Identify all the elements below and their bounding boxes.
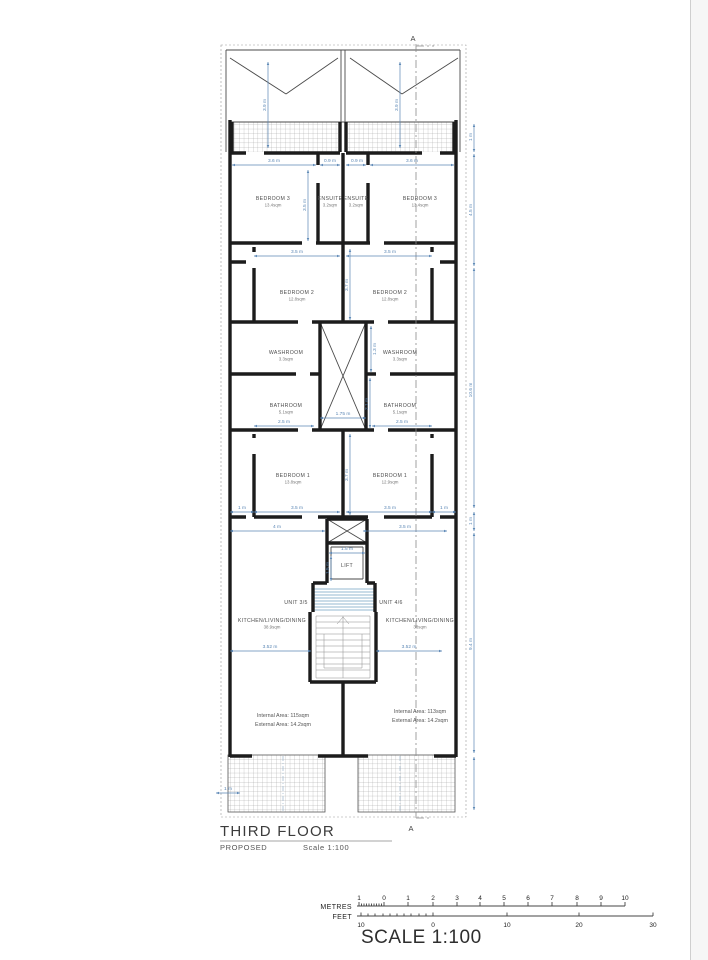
dim-label-28: 4.5 m [468, 204, 474, 216]
room-area-bedroom2-right: 12.8sqm [382, 297, 399, 302]
room-label-unit-4-6: UNIT 4/6 [379, 600, 402, 606]
metres-tick-2: 1 [406, 895, 410, 902]
metres-tick-9: 8 [575, 895, 579, 902]
area-note-1-line-1: External Area: 14.2sqm [392, 718, 449, 724]
drawing-sheet: BEDROOM 313.4sqmENSUITE3.2sqmENSUITE3.2s… [0, 0, 708, 960]
room-label-lift: LIFT [341, 563, 354, 569]
room-area-ensuite-right: 3.2sqm [349, 203, 364, 208]
floor-plan-canvas: BEDROOM 313.4sqmENSUITE3.2sqmENSUITE3.2s… [0, 0, 708, 960]
metres-tick-0: 1 [357, 895, 361, 902]
area-note-0-line-1: External Area: 14.2sqm [255, 722, 312, 728]
balcony-hatch [228, 755, 455, 812]
room-area-bathroom-right: 5.1sqm [393, 410, 408, 415]
area-note-1-line-0: Internal Area: 113sqm [394, 709, 447, 715]
metres-tick-4: 3 [455, 895, 459, 902]
metres-tick-11: 10 [621, 895, 629, 902]
dim-label-16: 3.52 m [263, 644, 278, 650]
room-area-kitchen-right: 38sqm [413, 625, 427, 630]
dim-label-2: 0.9 m [351, 158, 363, 164]
feet-tick-2: 10 [503, 922, 511, 929]
metres-tick-3: 2 [431, 895, 435, 902]
area-note-0-line-0: Internal Area: 115sqm [257, 713, 310, 719]
drawing-subtitle: PROPOSED [220, 843, 267, 852]
area-notes: Internal Area: 115sqmExternal Area: 14.2… [255, 709, 449, 728]
room-area-bedroom1-right: 12.9sqm [382, 480, 399, 485]
room-area-bathroom-left: 5.1sqm [279, 410, 294, 415]
room-label-ensuite-right: ENSUITE [344, 196, 369, 202]
dim-label-14: 3.5 m [399, 524, 411, 530]
room-label-bedroom3-left: BEDROOM 3 [256, 196, 290, 202]
dim-label-10: 3.5 m [291, 505, 303, 511]
dim-label-30: 1 m [468, 517, 474, 525]
dim-label-8: 1.75 m [336, 411, 351, 417]
section-marker-bottom: A [408, 824, 413, 833]
room-area-kitchen-left: 38.9sqm [264, 625, 281, 630]
dim-label-4: 3.5 m [291, 249, 303, 255]
room-label-washroom-right: WASHROOM [383, 350, 417, 356]
dim-label-20: 3.9 m [394, 99, 400, 111]
room-label-bathroom-right: BATHROOM [384, 403, 416, 409]
dim-label-22: 3.7 m [344, 279, 350, 291]
room-area-washroom-right: 3.3sqm [393, 357, 408, 362]
room-area-bedroom1-left: 13.8sqm [285, 480, 302, 485]
room-label-unit-3-5: UNIT 3/5 [284, 600, 307, 606]
title-block: THIRD FLOOR PROPOSED Scale 1:100 [220, 823, 392, 852]
dim-label-17: 3.52 m [402, 644, 417, 650]
metres-ruler [357, 902, 625, 906]
room-label-washroom-left: WASHROOM [269, 350, 303, 356]
dim-label-27: 1 m [468, 133, 474, 141]
dim-label-11: 3.5 m [384, 505, 396, 511]
metres-label: METRES [320, 904, 352, 911]
metres-tick-8: 7 [550, 895, 554, 902]
dim-label-15: 1.5 m [341, 546, 353, 552]
dim-label-1: 0.9 m [324, 158, 336, 164]
room-label-bedroom1-left: BEDROOM 1 [276, 473, 310, 479]
dim-label-29: 10.6 m [468, 383, 474, 398]
dim-label-13: 4 m [273, 524, 281, 530]
room-area-bedroom3-left: 13.4sqm [265, 203, 282, 208]
feet-tick-4: 30 [649, 922, 657, 929]
room-label-ensuite-left: ENSUITE [318, 196, 343, 202]
drawing-title: THIRD FLOOR [220, 823, 335, 840]
feet-label: FEET [333, 914, 353, 921]
scale-bar: METRES FEET 1012345678910 100102030 SCAL… [320, 895, 657, 948]
dim-label-23: 1.3 m [372, 343, 378, 355]
dim-label-19: 3.9 m [262, 99, 268, 111]
room-area-washroom-left: 3.3sqm [279, 357, 294, 362]
section-marker-top: A [410, 34, 415, 43]
scale-bar-title: SCALE 1:100 [361, 927, 482, 948]
terrace-hatch [232, 122, 454, 152]
room-label-bedroom2-left: BEDROOM 2 [280, 290, 314, 296]
room-label-bedroom3-right: BEDROOM 3 [403, 196, 437, 202]
feet-ruler [357, 913, 653, 917]
dim-label-26: 1.5 m [325, 562, 331, 574]
landing-stripes [312, 589, 375, 610]
room-label-kitchen-right: KITCHEN/LIVING/DINING [386, 618, 454, 624]
dim-label-0: 3.6 m [268, 158, 280, 164]
dim-label-7: 2.5 m [396, 419, 408, 425]
room-area-bedroom2-left: 12.8sqm [289, 297, 306, 302]
room-label-bathroom-left: BATHROOM [270, 403, 302, 409]
metres-tick-6: 5 [502, 895, 506, 902]
feet-tick-3: 20 [575, 922, 583, 929]
dim-label-18: 1 m [224, 786, 232, 792]
metres-tick-labels: 1012345678910 [357, 895, 629, 902]
drawing-scale-note: Scale 1:100 [303, 843, 349, 852]
dim-label-5: 3.5 m [384, 249, 396, 255]
dim-label-21: 3.5 m [302, 199, 308, 211]
room-area-ensuite-left: 3.2sqm [323, 203, 338, 208]
staircase [316, 616, 370, 678]
room-label-kitchen-left: KITCHEN/LIVING/DINING [238, 618, 306, 624]
page-margin-strip [690, 0, 708, 960]
room-area-bedroom3-right: 13.4sqm [412, 203, 429, 208]
metres-tick-5: 4 [478, 895, 482, 902]
dim-label-3: 3.6 m [406, 158, 418, 164]
room-label-bedroom1-right: BEDROOM 1 [373, 473, 407, 479]
metres-tick-7: 6 [526, 895, 530, 902]
metres-tick-1: 0 [382, 895, 386, 902]
dim-label-31: 9.4 m [468, 638, 474, 650]
dim-label-9: 1 m [238, 505, 246, 511]
metres-tick-10: 9 [599, 895, 603, 902]
dim-label-25: 3.7 m [344, 469, 350, 481]
dim-label-6: 2.5 m [278, 419, 290, 425]
dim-label-24: 2.1 m [364, 398, 370, 410]
dim-label-12: 1 m [440, 505, 448, 511]
room-label-bedroom2-right: BEDROOM 2 [373, 290, 407, 296]
